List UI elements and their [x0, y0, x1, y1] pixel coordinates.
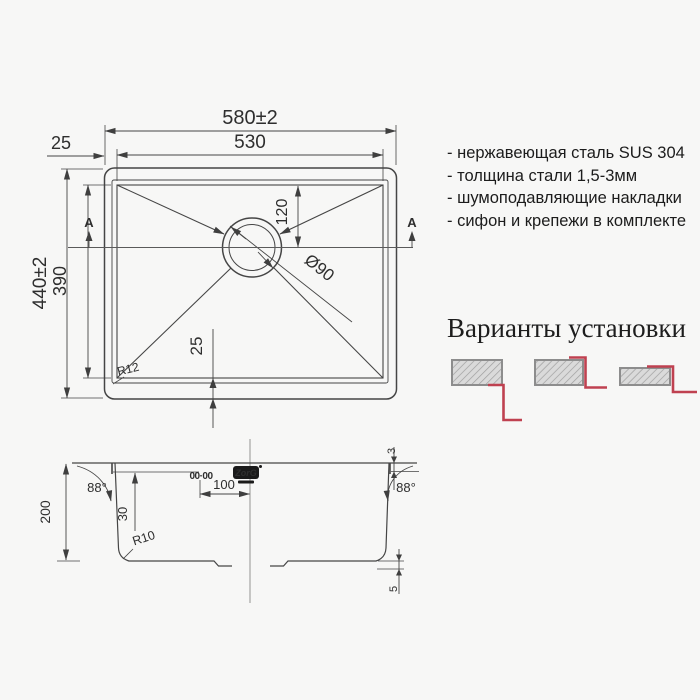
dim-depth: 200 [37, 500, 53, 524]
countertop-section [452, 360, 502, 385]
arrow-up [391, 472, 397, 479]
dim-bottom-step: 5 [388, 586, 400, 592]
r10-leader [123, 549, 133, 559]
install-variant-undermount [452, 360, 522, 420]
stamp-mark: 00·00 [189, 471, 213, 482]
logo-text: ZorG [234, 468, 257, 478]
sink-edge-red [488, 385, 522, 420]
section-arrow-left [86, 231, 93, 241]
dim-width-inner: 530 [234, 132, 266, 153]
dim-100: 100 [213, 477, 235, 492]
dim-drain-diameter: Ø90 [301, 250, 338, 285]
countertop-section [535, 360, 583, 385]
arrow-up [396, 569, 402, 576]
dim-width-outer: 580±2 [222, 107, 277, 129]
bowl-top-edge [117, 185, 383, 378]
countertop-section [620, 368, 670, 385]
dim-bottom-offset: 25 [187, 337, 206, 356]
section-view-labels: 200 88° 88° 30 100 3 5 R10 00·00 ZorG [37, 448, 416, 592]
dim-rim-height: 3 [386, 448, 398, 454]
section-label-left: A [84, 215, 94, 230]
arrow-up [210, 399, 217, 409]
install-variant-overmount [620, 367, 697, 393]
dim-height-inner: 390 [50, 266, 70, 296]
dim-bottom-radius: R10 [131, 528, 157, 548]
spec-item-soundproof: - шумоподавляющие накладки [447, 187, 686, 210]
section-arrow-right [409, 231, 416, 241]
dim-angle-left: 88° [87, 480, 107, 495]
logo-registered-dot [259, 465, 262, 468]
technical-drawing: 580±2 530 25 440±2 390 120 Ø90 25 R12 A … [0, 0, 700, 700]
section-label-right: A [407, 215, 417, 230]
bowl-right-wall [270, 463, 389, 566]
arrow-down [396, 555, 402, 562]
dim-angle-right: 88° [396, 480, 416, 495]
spec-item-material: - нержавеющая сталь SUS 304 [447, 142, 686, 165]
top-view [47, 125, 416, 428]
spec-list: - нержавеющая сталь SUS 304 - толщина ст… [447, 142, 686, 232]
spec-item-thickness: - толщина стали 1,5-3мм [447, 165, 686, 188]
section-view [57, 439, 419, 603]
dim-drain-offset: 120 [274, 199, 291, 226]
install-options-title: Варианты установки [447, 313, 686, 344]
dim-rim-left: 25 [51, 133, 71, 153]
install-variant-flush [535, 358, 607, 388]
drawing-page: 580±2 530 25 440±2 390 120 Ø90 25 R12 A … [0, 0, 700, 700]
dim-30: 30 [115, 507, 130, 521]
crease-top-left [117, 185, 224, 234]
sink-outer-rim [105, 168, 397, 399]
install-variants [452, 358, 697, 421]
sink-rim-inner-line [112, 180, 388, 383]
dim-corner-radius: R12 [116, 360, 141, 379]
dim-height-outer: 440±2 [30, 257, 51, 310]
crease-bottom-right [274, 268, 383, 378]
logo-underbar [238, 481, 254, 484]
crease-top-right [280, 185, 383, 234]
arrow-down [391, 457, 397, 464]
spec-item-siphon: - сифон и крепежи в комплекте [447, 210, 686, 233]
